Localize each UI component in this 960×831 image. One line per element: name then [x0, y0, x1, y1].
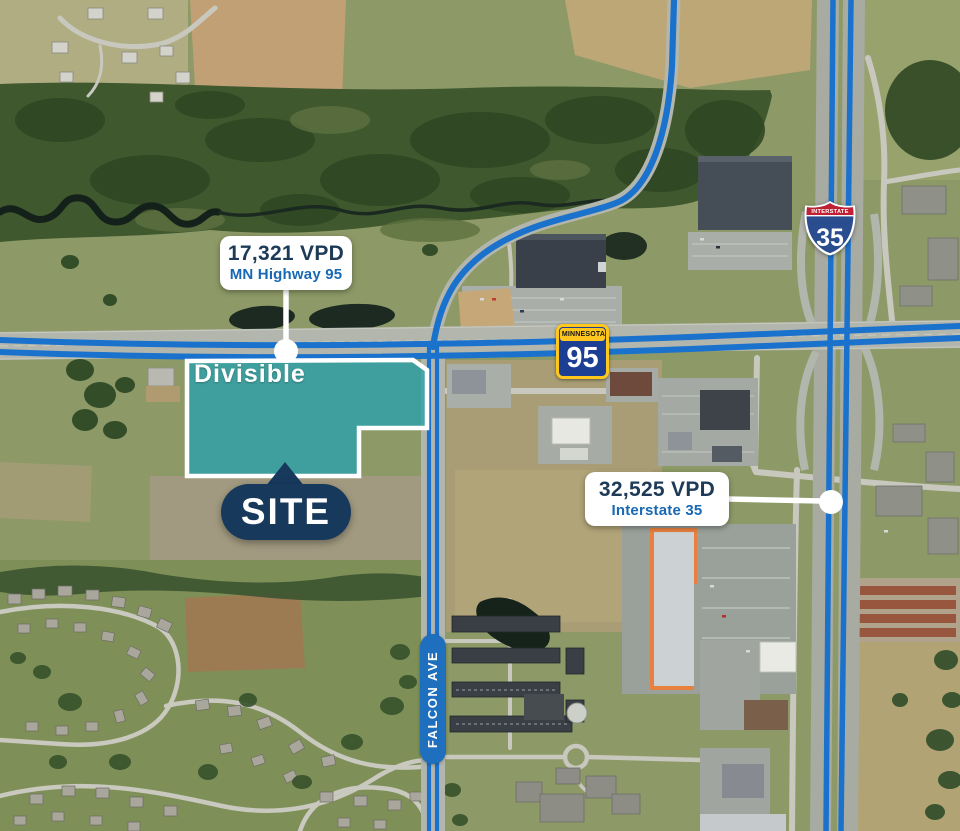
falcon-ave-label: FALCON AVE	[420, 634, 446, 764]
divisible-label: Divisible	[194, 360, 306, 389]
traffic-count-value: 32,525 VPD	[599, 478, 715, 502]
minnesota-banner: MINNESOTA	[562, 331, 605, 338]
aerial-site-map: 17,321 VPD MN Highway 95 32,525 VPD Inte…	[0, 0, 960, 831]
callout-hwy95: 17,321 VPD MN Highway 95	[220, 236, 352, 290]
falcon-ave-text: FALCON AVE	[426, 650, 441, 747]
point-marker-icon	[819, 490, 843, 514]
interstate-35-shield: INTERSTATE 35	[803, 199, 857, 257]
interstate-banner: INTERSTATE	[811, 209, 848, 215]
site-badge: SITE	[221, 484, 351, 540]
mn-route-number: 95	[559, 340, 606, 376]
traffic-road-name: Interstate 35	[612, 502, 703, 519]
interstate-number: 35	[816, 225, 844, 252]
traffic-road-name: MN Highway 95	[230, 266, 343, 283]
mn-95-shield: MINNESOTA 95	[556, 324, 609, 379]
satellite-imagery	[0, 0, 960, 831]
traffic-count-value: 17,321 VPD	[228, 242, 344, 266]
callout-i35: 32,525 VPD Interstate 35	[585, 472, 729, 526]
site-badge-label: SITE	[241, 491, 331, 533]
